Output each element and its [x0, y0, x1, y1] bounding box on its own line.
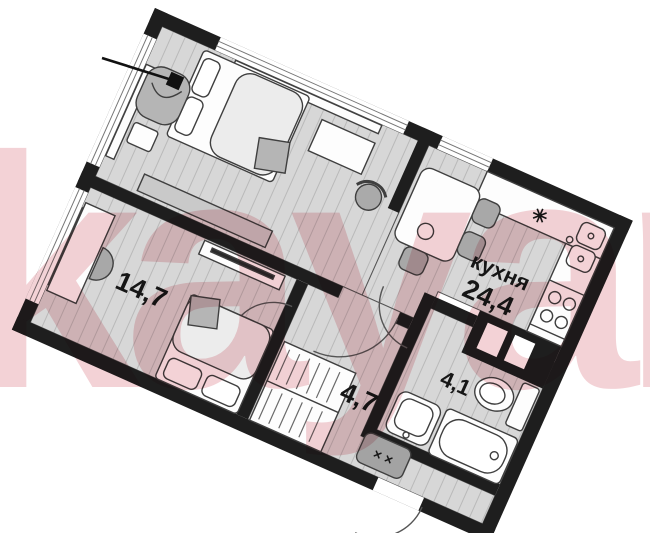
floorplan-page: ✳ — [0, 0, 650, 533]
floor-plan: ✳ — [0, 0, 650, 533]
